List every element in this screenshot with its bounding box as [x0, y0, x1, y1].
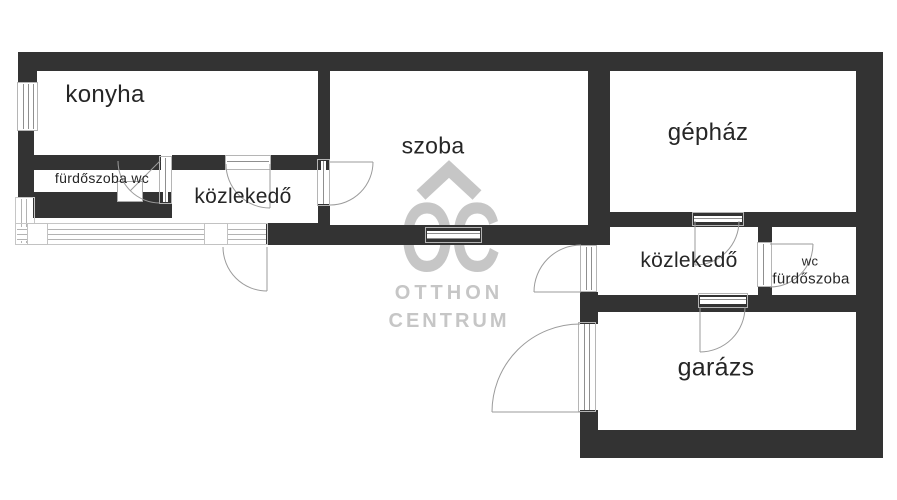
wall-left-corner [18, 52, 37, 83]
wall-wc-divider-top [758, 227, 772, 242]
veranda-mullion-west [27, 223, 48, 245]
room-label-wc: wc [802, 254, 819, 269]
wall-konyha-bottom-west [33, 155, 161, 170]
room-label-gephaz: gépház [668, 119, 749, 147]
wall-furdoszoba-bottom [33, 192, 172, 218]
wall-wc-divider-bottom [758, 287, 772, 295]
veranda-mullion-east [204, 223, 228, 245]
room-label-kozlekedo-right: közlekedő [640, 249, 737, 273]
wall-top [18, 52, 883, 71]
wall-garage-bottom [580, 430, 882, 458]
room-label-furdoszoba-wc: fürdőszoba wc [55, 170, 149, 186]
door-konyha-kozlekedo [225, 155, 271, 170]
door-garage-side [578, 322, 596, 412]
swing-kozlekedo-garage [700, 307, 745, 352]
door-kozlekedo-wc [757, 242, 772, 287]
watermark-line1: OTTHON [395, 282, 503, 304]
wall-konyha-szoba [318, 71, 330, 161]
door-furdoszoba [159, 156, 172, 204]
wall-szoba-gephaz [588, 71, 610, 227]
room-label-garazs: garázs [678, 354, 755, 383]
wall-right [856, 52, 883, 458]
watermark-line2: CENTRUM [389, 310, 510, 332]
wall-left-mid [18, 131, 34, 197]
wall-konyha-bottom-east [172, 155, 226, 170]
door-kozlekedo-exterior [580, 245, 597, 292]
window-konyha-left [17, 82, 38, 131]
window-szoba-bottom [425, 227, 482, 243]
door-kozlekedo-garage [698, 293, 748, 308]
swing-veranda-door [223, 247, 267, 291]
swing-kozlekedo-exterior [534, 245, 581, 292]
door-gephaz-kozlekedo [692, 212, 744, 226]
window-veranda-strip [15, 223, 268, 245]
room-label-kozlekedo-left: közlekedő [194, 185, 291, 209]
wall-bottom-left-block [266, 223, 330, 245]
door-kozlekedo-szoba [317, 159, 330, 206]
swing-kozlekedo-szoba [330, 162, 373, 205]
room-label-szoba: szoba [402, 133, 465, 160]
room-label-furdoszoba: fürdőszoba [772, 271, 849, 288]
floor-plan: OC OTTHON CENTRUM [0, 0, 897, 500]
swing-garage-side [492, 324, 580, 412]
wall-left-stub-mid [580, 292, 598, 324]
roof-chevron-icon [421, 169, 477, 195]
room-label-konyha: konyha [65, 81, 144, 109]
